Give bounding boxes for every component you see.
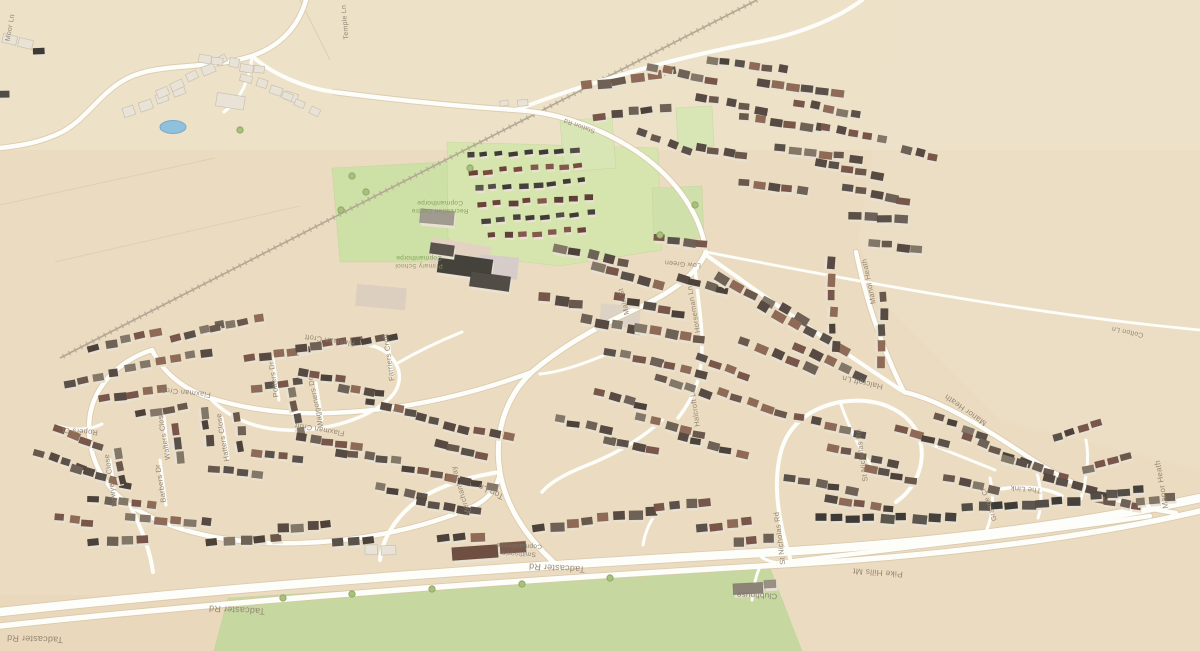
street-label: Low Green bbox=[664, 258, 701, 268]
poi-label: Primary School bbox=[395, 262, 443, 269]
street-label: Walters Close bbox=[155, 410, 172, 460]
poi-label: Recreation Centre bbox=[411, 207, 468, 214]
map-canvas[interactable]: Tadcaster RdTadcaster RdTadcaster RdTop … bbox=[0, 0, 1200, 651]
street-label: Waggoners Dr bbox=[306, 376, 325, 428]
street-label: Tadcaster Rd bbox=[7, 633, 63, 645]
street-label: Pike Hills Mt bbox=[852, 566, 903, 579]
street-label: Potters Dr bbox=[267, 361, 281, 398]
street-label: Hatters Close bbox=[214, 413, 231, 463]
poi-label: Clubhouse bbox=[736, 590, 777, 600]
street-label: Barbers Dr bbox=[153, 463, 168, 503]
poi-label: Copmanthorpe bbox=[396, 254, 442, 261]
poi-label: Smithson's bbox=[501, 549, 536, 557]
map-viewport[interactable]: Tadcaster RdTadcaster RdTadcaster RdTop … bbox=[0, 0, 1200, 651]
street-label: The Link bbox=[1010, 484, 1041, 496]
poi-label: Copmanthorpe bbox=[417, 199, 463, 206]
pond bbox=[160, 121, 186, 134]
